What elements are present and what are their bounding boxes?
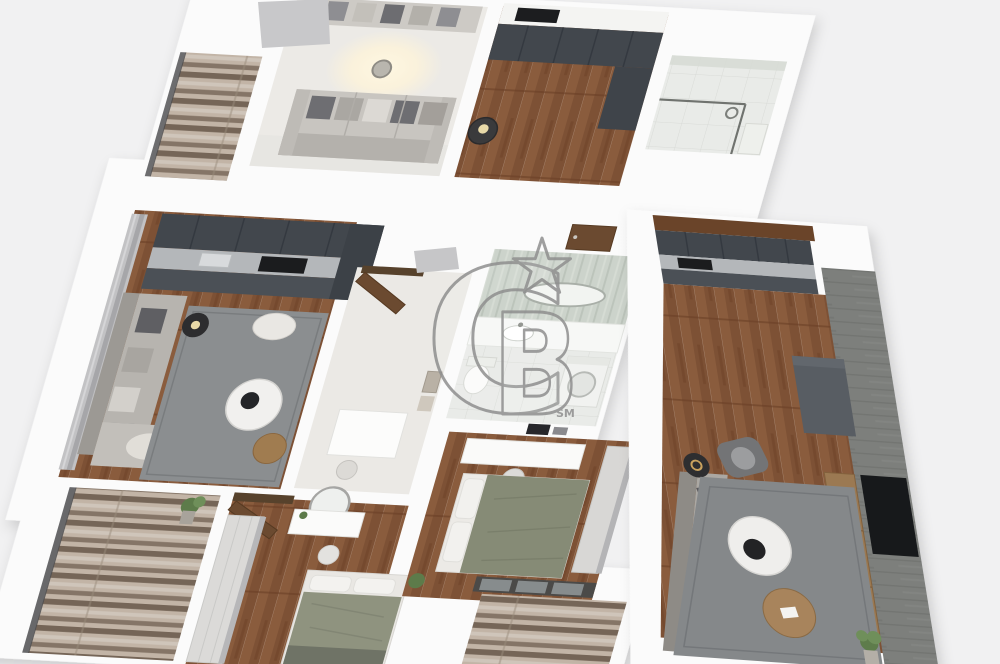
floor-plan-svg: C B SM bbox=[0, 0, 1000, 664]
hall-vanity bbox=[327, 409, 408, 458]
living-sofa bbox=[278, 89, 457, 164]
plant-pot bbox=[863, 650, 879, 664]
watermark: C B SM bbox=[424, 226, 580, 459]
bed bbox=[436, 473, 590, 578]
console-table bbox=[288, 509, 365, 537]
bed-pillow bbox=[308, 575, 352, 592]
wall-top-patch bbox=[258, 0, 330, 48]
watermark-service-mark: SM bbox=[556, 407, 575, 420]
bed-pillow bbox=[352, 577, 396, 594]
entry-door bbox=[566, 225, 617, 252]
mid-cooktop bbox=[258, 256, 308, 274]
floor-plan-render: C B SM bbox=[0, 0, 1000, 664]
lower-center-balcony bbox=[458, 594, 627, 664]
watermark-letter-b: B bbox=[492, 285, 580, 448]
cooktop bbox=[514, 8, 560, 23]
balcony-floor bbox=[458, 594, 627, 664]
mid-sink bbox=[198, 253, 232, 268]
